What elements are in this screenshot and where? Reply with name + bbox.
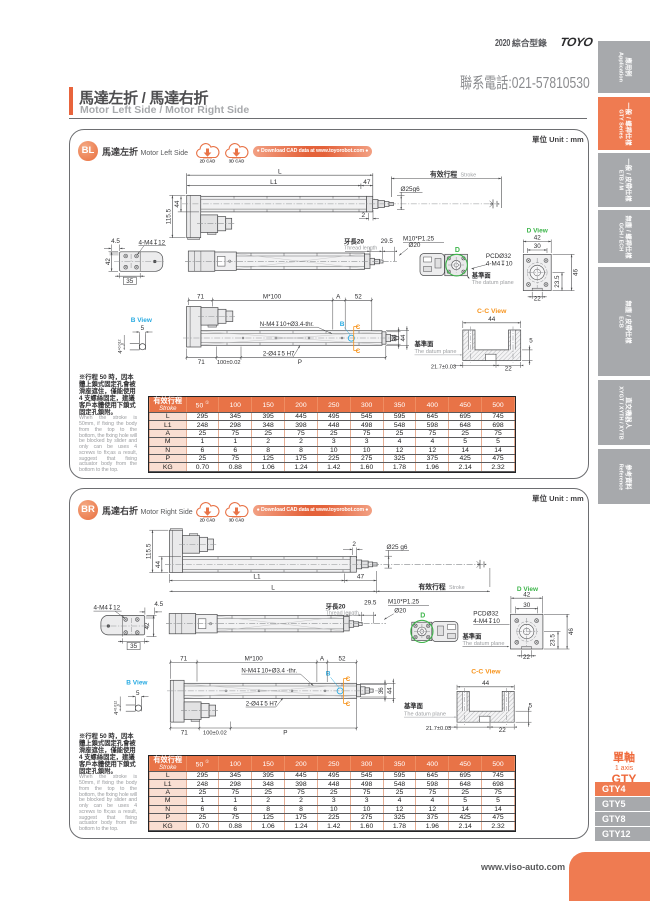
svg-text:D: D — [455, 247, 460, 254]
svg-text:115.5: 115.5 — [146, 543, 153, 559]
svg-text:44: 44 — [400, 334, 407, 341]
svg-text:100±0.02: 100±0.02 — [217, 360, 241, 366]
svg-text:71: 71 — [198, 359, 206, 366]
svg-text:42: 42 — [534, 235, 542, 242]
svg-text:30: 30 — [534, 243, 542, 250]
svg-text:21.7±0.03: 21.7±0.03 — [431, 364, 456, 370]
svg-text:Thread length: Thread length — [344, 246, 377, 252]
svg-text:PCDØ32: PCDØ32 — [486, 253, 512, 260]
svg-text:52: 52 — [355, 294, 363, 301]
svg-text:36: 36 — [378, 687, 385, 694]
svg-text:C: C — [356, 324, 361, 331]
svg-text:A: A — [336, 294, 341, 301]
svg-text:C: C — [356, 348, 361, 355]
svg-text:Stroke: Stroke — [449, 585, 465, 591]
svg-text:71: 71 — [197, 294, 205, 301]
svg-text:4-M4↧10: 4-M4↧10 — [473, 618, 500, 625]
svg-text:5: 5 — [141, 325, 145, 332]
svg-text:The datum plane: The datum plane — [415, 349, 457, 355]
svg-text:22: 22 — [505, 366, 513, 373]
svg-text:D: D — [420, 612, 425, 619]
svg-text:4-M4↧12: 4-M4↧12 — [94, 605, 121, 612]
svg-text:4.5: 4.5 — [154, 601, 163, 608]
svg-text:C-C View: C-C View — [477, 308, 507, 315]
svg-text:5: 5 — [136, 690, 140, 697]
svg-text:M*100: M*100 — [245, 656, 264, 663]
svg-text:46: 46 — [573, 269, 580, 277]
svg-text:35: 35 — [130, 643, 138, 650]
svg-text:Thread length: Thread length — [326, 610, 359, 616]
svg-text:P: P — [283, 730, 287, 737]
svg-text:基準面: 基準面 — [471, 270, 492, 279]
svg-text:30: 30 — [523, 602, 531, 609]
svg-text:21.7±0.03: 21.7±0.03 — [426, 726, 451, 732]
svg-text:基準面: 基準面 — [414, 339, 435, 348]
svg-text:22: 22 — [534, 296, 542, 303]
svg-text:牙長20: 牙長20 — [344, 237, 364, 246]
svg-text:44: 44 — [387, 687, 394, 694]
svg-text:P: P — [298, 359, 302, 366]
svg-text:42: 42 — [144, 622, 151, 630]
svg-text:D View: D View — [527, 228, 549, 235]
svg-text:The datum plane: The datum plane — [472, 280, 514, 286]
svg-text:71: 71 — [180, 656, 188, 663]
svg-text:C: C — [346, 676, 351, 683]
svg-text:PCDØ32: PCDØ32 — [473, 611, 499, 618]
svg-text:M10*P1.25: M10*P1.25 — [388, 599, 420, 606]
svg-text:29.5: 29.5 — [381, 238, 394, 245]
svg-text:29.5: 29.5 — [364, 600, 377, 607]
svg-text:有效行程: 有效行程 — [430, 169, 457, 178]
svg-text:B: B — [326, 671, 331, 678]
svg-text:A: A — [320, 656, 325, 663]
svg-text:The datum plane: The datum plane — [404, 711, 446, 717]
svg-text:L1: L1 — [270, 179, 278, 186]
svg-text:22: 22 — [523, 654, 531, 661]
svg-text:47: 47 — [363, 179, 371, 186]
svg-text:M*100: M*100 — [263, 294, 282, 301]
svg-text:4-M4↧10: 4-M4↧10 — [486, 260, 513, 267]
svg-text:42: 42 — [105, 258, 112, 266]
svg-text:2: 2 — [352, 541, 356, 548]
svg-text:Ø25g6: Ø25g6 — [401, 186, 421, 193]
svg-text:23.5: 23.5 — [554, 275, 561, 288]
svg-text:5: 5 — [529, 338, 533, 345]
svg-text:4.5: 4.5 — [111, 238, 120, 245]
svg-text:B: B — [340, 321, 345, 328]
svg-text:5: 5 — [529, 703, 533, 710]
svg-text:Stroke: Stroke — [461, 172, 477, 178]
svg-text:22: 22 — [499, 727, 507, 734]
svg-text:牙長20: 牙長20 — [326, 602, 346, 611]
svg-text:100±0.02: 100±0.02 — [203, 731, 227, 737]
svg-text:L1: L1 — [253, 574, 261, 581]
svg-text:B View: B View — [126, 679, 148, 686]
svg-text:23.5: 23.5 — [550, 634, 557, 647]
svg-text:2-Ø4↧5 H7: 2-Ø4↧5 H7 — [263, 351, 295, 358]
svg-text:C-C View: C-C View — [471, 669, 501, 676]
svg-text:L: L — [278, 168, 282, 175]
svg-text:基準面: 基準面 — [462, 631, 483, 640]
svg-text:115.5: 115.5 — [166, 208, 173, 224]
svg-text:2: 2 — [362, 212, 366, 219]
svg-text:71: 71 — [181, 730, 189, 737]
svg-text:N-M4↧10+Ø3.4 -thr.: N-M4↧10+Ø3.4 -thr. — [241, 668, 297, 675]
svg-text:44: 44 — [488, 316, 496, 323]
svg-text:0: 0 — [117, 704, 121, 706]
svg-text:44: 44 — [174, 200, 181, 208]
svg-text:42: 42 — [523, 591, 531, 598]
svg-text:36: 36 — [391, 334, 398, 341]
svg-text:35: 35 — [126, 278, 134, 285]
svg-text:47: 47 — [357, 574, 365, 581]
svg-text:有效行程: 有效行程 — [419, 582, 446, 591]
svg-text:基準面: 基準面 — [403, 701, 424, 710]
svg-text:44: 44 — [482, 680, 490, 687]
svg-text:Ø20: Ø20 — [409, 242, 421, 249]
svg-text:Ø25 g6: Ø25 g6 — [387, 544, 408, 551]
svg-text:0: 0 — [121, 343, 125, 345]
svg-text:44: 44 — [155, 561, 162, 569]
svg-text:52: 52 — [338, 656, 346, 663]
svg-text:46: 46 — [568, 628, 575, 636]
svg-text:2-Ø4↧5 H7: 2-Ø4↧5 H7 — [246, 701, 278, 708]
svg-text:C: C — [346, 701, 351, 708]
svg-text:B View: B View — [131, 317, 153, 324]
svg-text:The datum plane: The datum plane — [463, 641, 505, 647]
svg-text:L: L — [271, 585, 275, 592]
svg-text:4-M4↧12: 4-M4↧12 — [139, 239, 166, 246]
svg-text:Ø20: Ø20 — [394, 608, 406, 615]
svg-text:N-M4↧10+Ø3.4-thr.: N-M4↧10+Ø3.4-thr. — [260, 321, 314, 328]
